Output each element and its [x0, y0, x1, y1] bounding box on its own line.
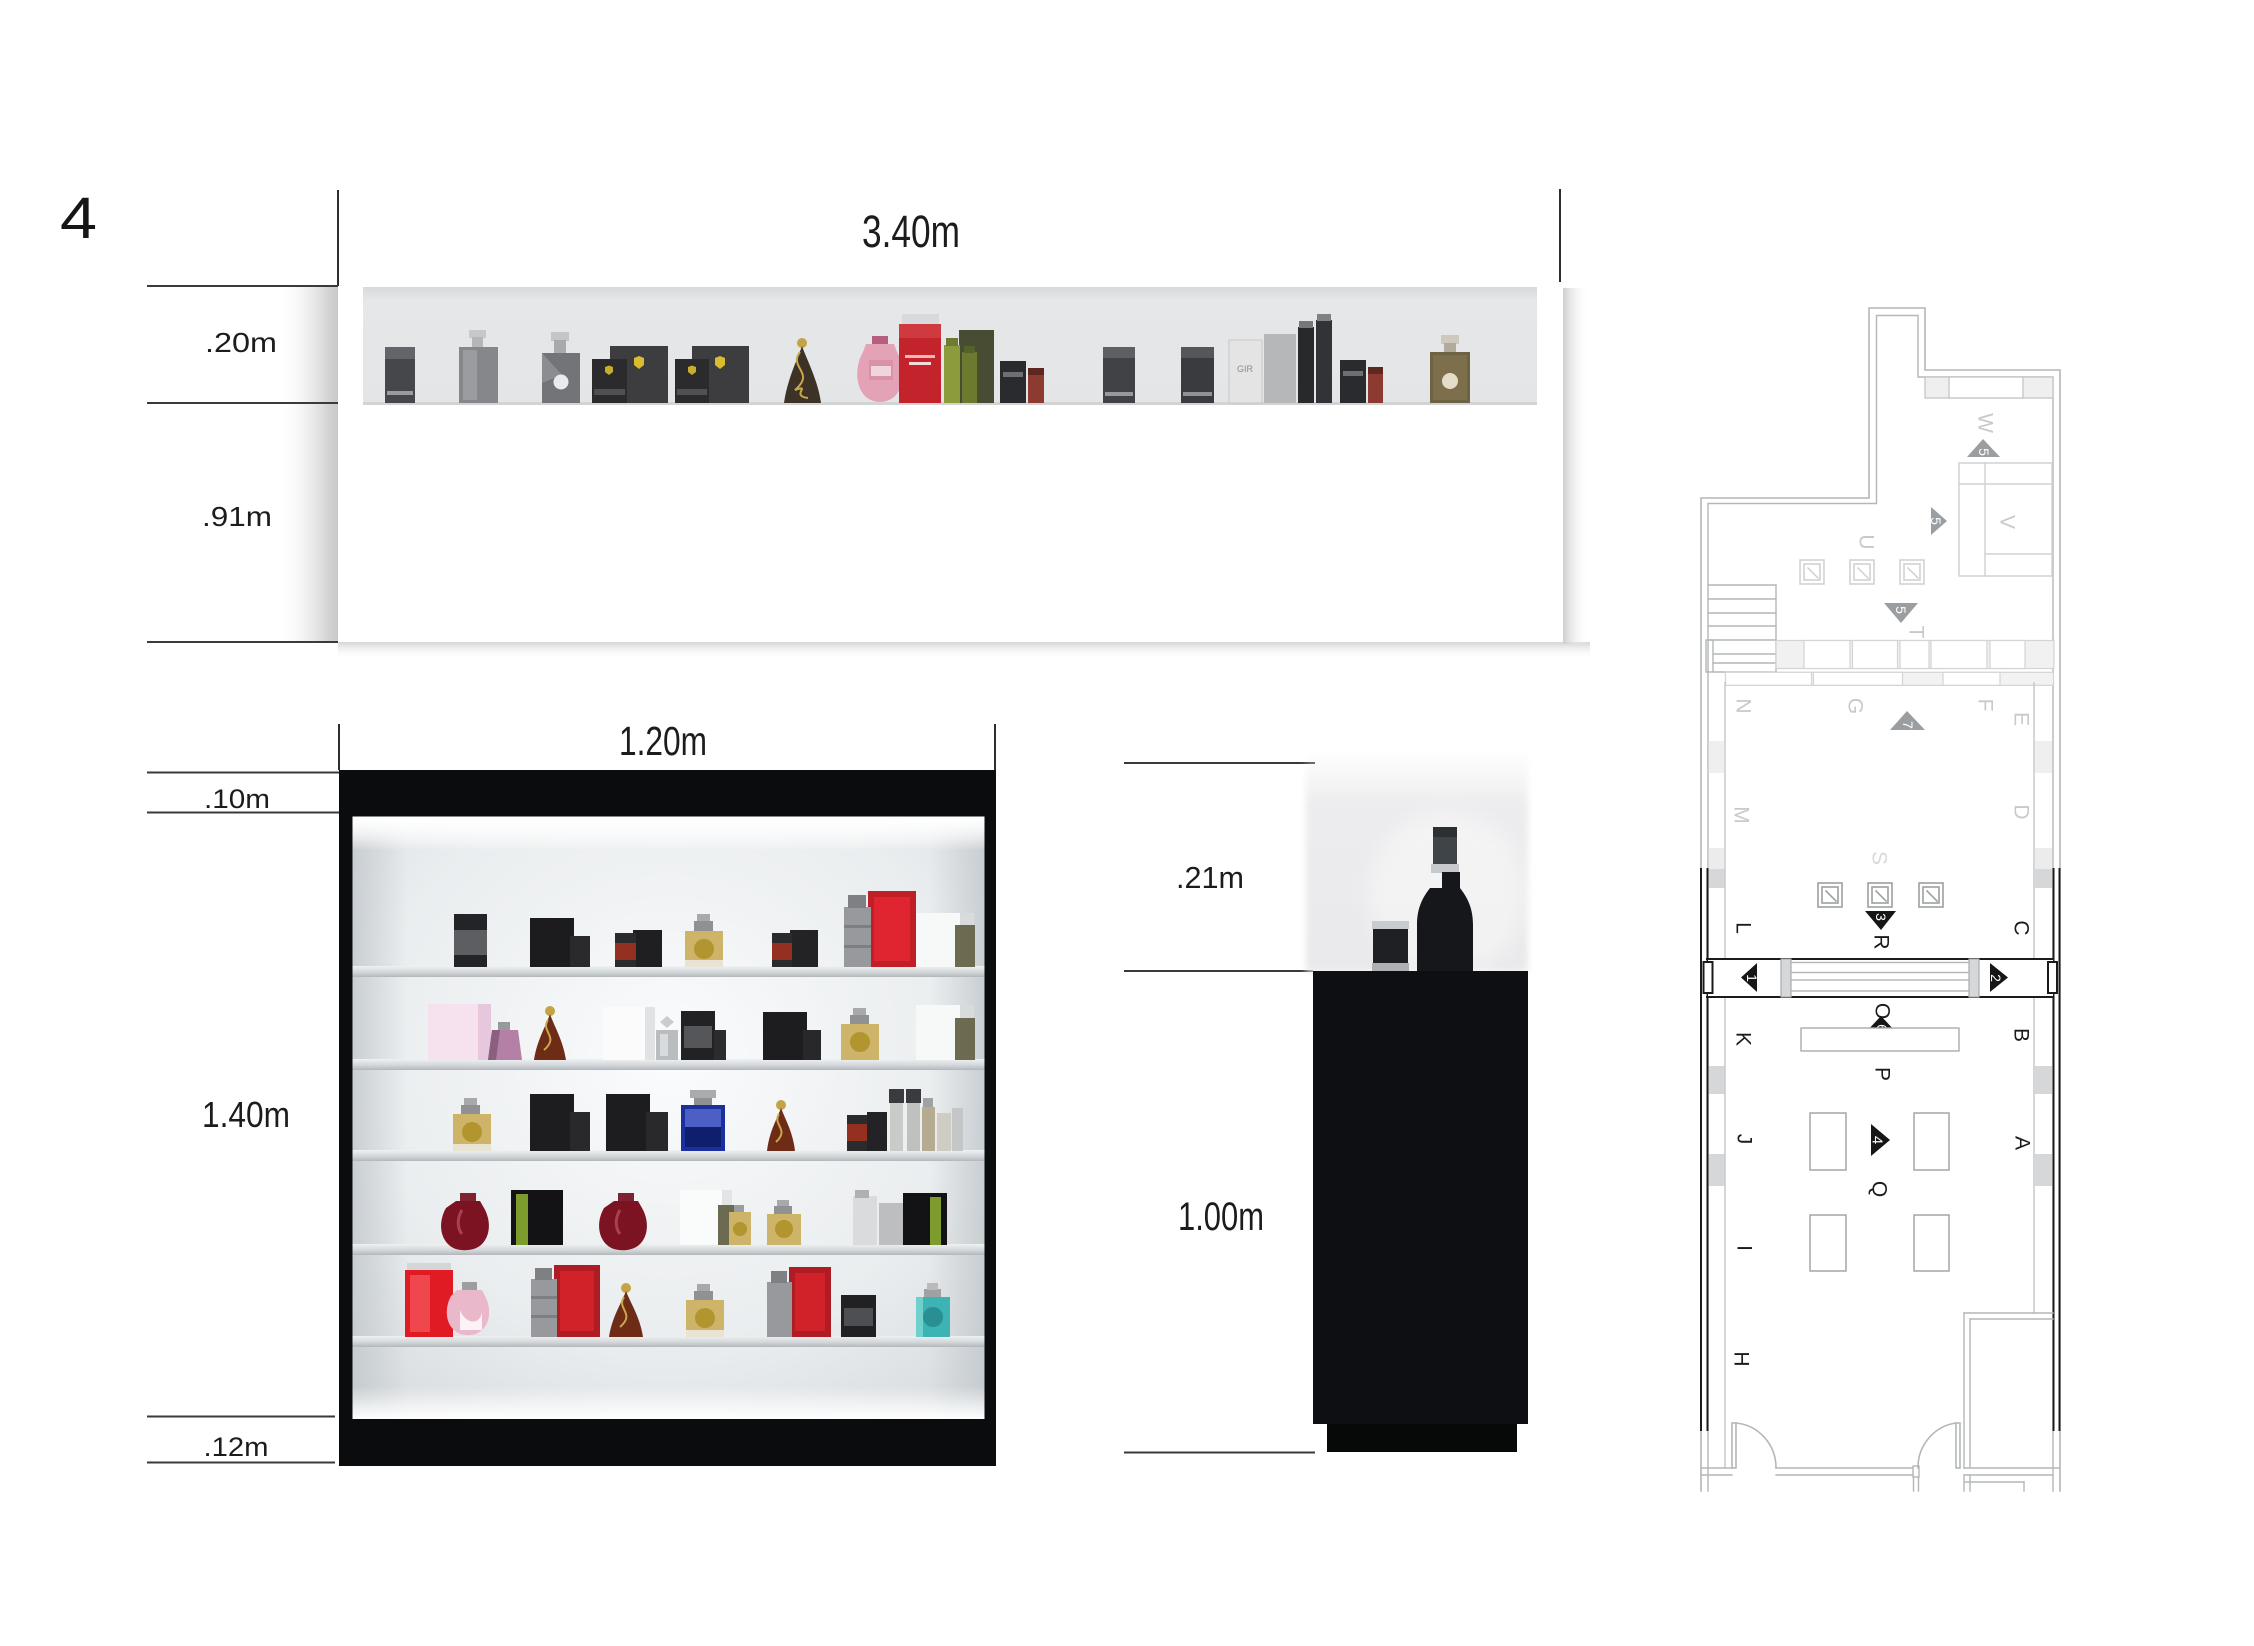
svg-text:4: 4 — [1869, 1136, 1886, 1144]
svg-text:Q: Q — [1868, 1181, 1891, 1197]
svg-text:J: J — [1733, 1134, 1756, 1145]
svg-text:A: A — [2011, 1136, 2034, 1150]
svg-text:5: 5 — [1976, 448, 1992, 456]
svg-text:.12m: .12m — [204, 1432, 269, 1462]
svg-text:3.40m: 3.40m — [862, 206, 960, 257]
svg-text:L: L — [1732, 922, 1755, 934]
svg-text:M: M — [1730, 806, 1753, 824]
svg-text:S: S — [1868, 851, 1891, 865]
svg-text:3: 3 — [1873, 913, 1889, 921]
svg-text:I: I — [1733, 1245, 1756, 1251]
svg-text:.10m: .10m — [204, 784, 270, 814]
svg-text:7: 7 — [1900, 721, 1916, 729]
svg-text:1.00m: 1.00m — [1178, 1195, 1264, 1239]
svg-text:5: 5 — [1893, 606, 1909, 614]
svg-text:V: V — [1996, 515, 2019, 529]
svg-text:U: U — [1855, 534, 1878, 549]
svg-text:1.40m: 1.40m — [202, 1094, 290, 1135]
svg-text:.20m: .20m — [205, 327, 277, 358]
svg-text:1: 1 — [1744, 974, 1760, 982]
svg-text:F: F — [1974, 699, 1997, 712]
svg-text:D: D — [2010, 804, 2033, 819]
svg-text:W: W — [1974, 413, 1997, 433]
svg-text:T: T — [1905, 626, 1928, 639]
svg-text:O: O — [1871, 1003, 1894, 1019]
svg-text:1.20m: 1.20m — [619, 718, 707, 764]
svg-text:H: H — [1730, 1351, 1753, 1366]
svg-text:GIR: GIR — [1237, 364, 1254, 374]
svg-text:K: K — [1732, 1032, 1755, 1046]
svg-text:G: G — [1844, 698, 1867, 714]
svg-text:R: R — [1870, 934, 1893, 949]
svg-text:P: P — [1871, 1067, 1894, 1081]
svg-text:C: C — [2010, 920, 2033, 935]
svg-text:E: E — [2010, 712, 2033, 726]
svg-text:.21m: .21m — [1176, 860, 1244, 895]
svg-text:4: 4 — [60, 186, 97, 251]
svg-text:.91m: .91m — [202, 501, 272, 532]
svg-text:2: 2 — [1988, 974, 2004, 982]
svg-text:N: N — [1732, 698, 1755, 713]
svg-text:B: B — [2010, 1028, 2033, 1042]
svg-text:5: 5 — [1928, 517, 1944, 525]
